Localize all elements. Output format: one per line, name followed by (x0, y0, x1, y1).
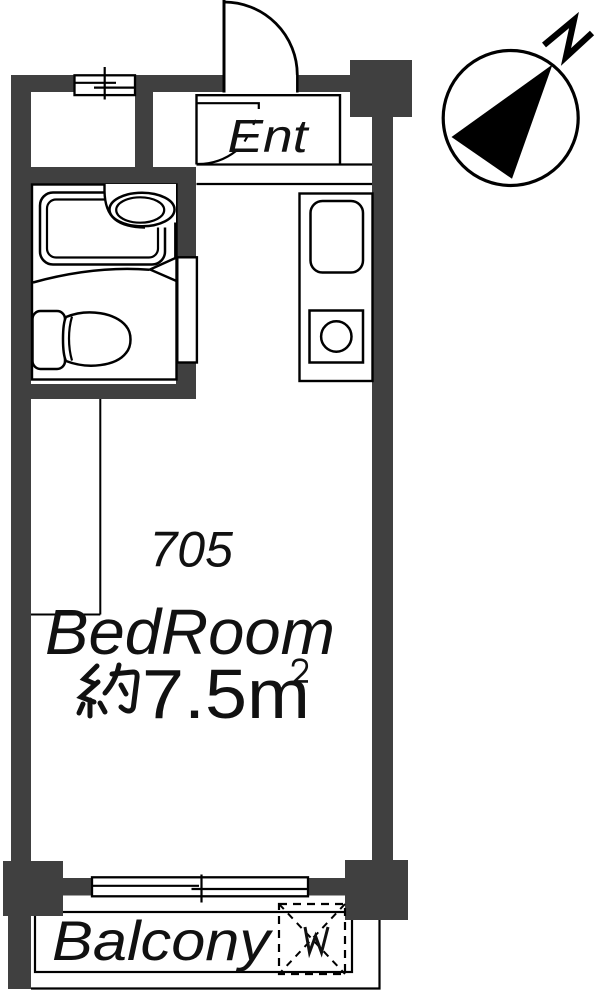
svg-text:Balcony: Balcony (52, 909, 273, 972)
svg-text:Ent: Ent (228, 110, 311, 162)
svg-text:7.5m: 7.5m (142, 655, 310, 733)
svg-text:705: 705 (150, 522, 234, 578)
